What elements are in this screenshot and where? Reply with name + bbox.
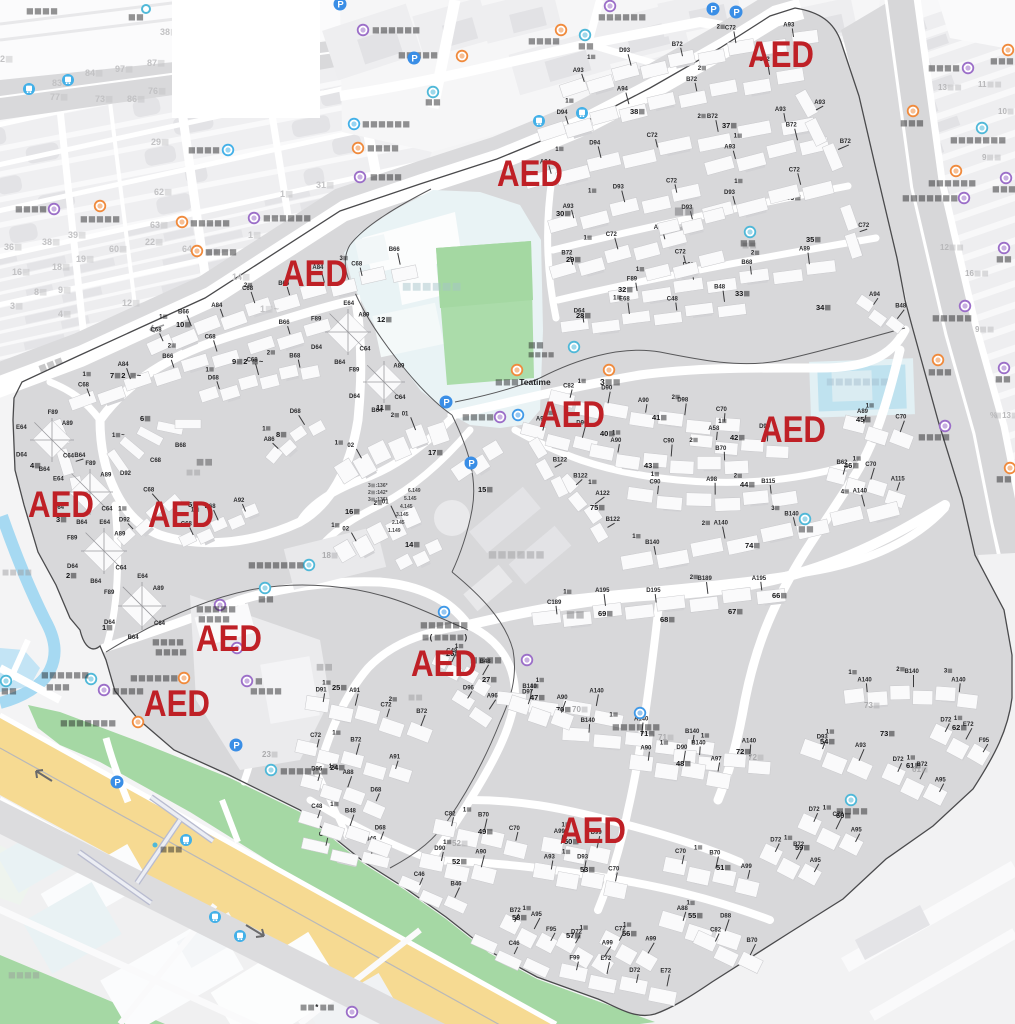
svg-text:C72: C72 — [606, 232, 618, 238]
svg-text:B66: B66 — [162, 354, 174, 360]
svg-text:61: 61 — [912, 765, 921, 774]
svg-text:74: 74 — [745, 541, 754, 550]
svg-text:A94: A94 — [869, 292, 881, 298]
svg-text:D72: D72 — [809, 807, 821, 813]
svg-text:B64: B64 — [334, 360, 346, 366]
svg-text:02: 02 — [347, 443, 354, 449]
svg-text:F99: F99 — [569, 956, 580, 962]
svg-text:15: 15 — [478, 485, 486, 494]
svg-text:C72: C72 — [647, 133, 659, 139]
svg-text:7: 7 — [110, 371, 114, 380]
svg-text:4: 4 — [58, 309, 63, 319]
svg-text:AED: AED — [282, 253, 348, 294]
svg-text:C70: C70 — [608, 867, 620, 873]
svg-text::136*: :136* — [376, 483, 388, 489]
svg-text:35: 35 — [806, 235, 814, 244]
svg-text:A95: A95 — [531, 912, 543, 918]
svg-text:66: 66 — [772, 591, 780, 600]
svg-text:A88: A88 — [343, 770, 355, 776]
svg-text:D91: D91 — [316, 687, 328, 693]
svg-text:1.149: 1.149 — [388, 528, 401, 534]
svg-text:9: 9 — [232, 357, 236, 366]
svg-text:2: 2 — [66, 571, 70, 580]
svg-text:63: 63 — [150, 220, 160, 230]
svg-text:C64: C64 — [102, 506, 114, 512]
svg-text:B115: B115 — [761, 479, 776, 485]
svg-text:B122: B122 — [573, 473, 588, 479]
svg-text:A95: A95 — [810, 858, 822, 864]
svg-text:B72: B72 — [840, 139, 852, 145]
svg-text:B48: B48 — [345, 809, 357, 815]
svg-text:29: 29 — [566, 255, 574, 264]
svg-text:2: 2 — [243, 357, 247, 366]
svg-text:A84: A84 — [118, 362, 130, 368]
svg-text:B122: B122 — [606, 517, 621, 523]
svg-text:E72: E72 — [660, 968, 671, 974]
svg-text:41: 41 — [652, 413, 660, 422]
svg-text:A92: A92 — [233, 498, 245, 504]
svg-text:C70: C70 — [716, 407, 728, 413]
svg-text:A122: A122 — [595, 491, 610, 497]
svg-text:A90: A90 — [475, 849, 487, 855]
svg-text:24: 24 — [330, 763, 339, 772]
svg-text:A93: A93 — [724, 145, 736, 151]
svg-text:D92: D92 — [119, 517, 131, 523]
svg-text:87: 87 — [147, 58, 157, 68]
svg-text:C64: C64 — [63, 454, 75, 460]
svg-text:12: 12 — [940, 243, 949, 252]
svg-text:B140: B140 — [691, 741, 706, 747]
svg-text:3: 3 — [10, 301, 15, 311]
svg-text:B140: B140 — [905, 669, 920, 675]
svg-text:C70: C70 — [865, 462, 877, 468]
svg-text:AED: AED — [196, 618, 262, 659]
svg-text:AED: AED — [148, 494, 214, 535]
svg-text:E64: E64 — [16, 425, 27, 431]
svg-text:A140: A140 — [742, 739, 757, 745]
svg-text:A89: A89 — [100, 473, 112, 479]
svg-text:A89: A89 — [393, 364, 405, 370]
svg-text:AED: AED — [560, 810, 626, 851]
svg-text:D93: D93 — [613, 185, 625, 191]
svg-text:B68: B68 — [289, 354, 301, 360]
svg-text:C72: C72 — [675, 249, 687, 255]
svg-text:D92: D92 — [120, 471, 132, 477]
svg-text:A96: A96 — [487, 694, 499, 700]
svg-text:~: ~ — [274, 304, 279, 314]
svg-text:D68: D68 — [370, 787, 382, 793]
svg-text:27: 27 — [482, 675, 490, 684]
svg-text:C90: C90 — [650, 480, 662, 486]
svg-text:A95: A95 — [935, 778, 947, 784]
svg-text:14: 14 — [405, 540, 414, 549]
svg-text:60: 60 — [109, 244, 119, 254]
svg-text:A95: A95 — [851, 828, 863, 834]
svg-text:1: 1 — [102, 623, 106, 632]
svg-text:34: 34 — [816, 303, 825, 312]
svg-text:D88: D88 — [720, 913, 732, 919]
svg-text:P: P — [443, 397, 450, 408]
svg-text:B64: B64 — [90, 579, 102, 585]
svg-text:C70: C70 — [509, 826, 521, 832]
svg-text:D195: D195 — [646, 588, 661, 594]
svg-text:B72: B72 — [707, 114, 719, 120]
svg-text:C72: C72 — [725, 25, 737, 31]
svg-text::142*: :142* — [376, 490, 388, 496]
svg-text:10: 10 — [998, 107, 1007, 116]
svg-text:D72: D72 — [770, 837, 782, 843]
svg-text:16: 16 — [965, 269, 974, 278]
svg-text:84: 84 — [85, 68, 95, 78]
svg-text:A99: A99 — [741, 864, 753, 870]
svg-text:12: 12 — [377, 315, 385, 324]
svg-text:9: 9 — [982, 153, 987, 162]
svg-text:72: 72 — [748, 753, 757, 762]
svg-text:B66: B66 — [389, 247, 401, 253]
svg-text:A94: A94 — [617, 87, 629, 93]
svg-text:AED: AED — [28, 484, 94, 525]
svg-text:F89: F89 — [311, 317, 322, 323]
svg-text:A98: A98 — [706, 477, 718, 483]
svg-text:A91: A91 — [389, 755, 401, 761]
svg-text:A89: A89 — [857, 409, 869, 415]
svg-text:A86: A86 — [264, 437, 276, 443]
svg-text:73: 73 — [880, 729, 888, 738]
svg-text:49: 49 — [478, 827, 486, 836]
svg-text:C46: C46 — [509, 941, 521, 947]
svg-text:B68: B68 — [741, 260, 753, 266]
svg-text:25: 25 — [332, 683, 340, 692]
svg-text:B70: B70 — [747, 938, 759, 944]
svg-text:Teatime: Teatime — [519, 377, 551, 387]
svg-text:6.149: 6.149 — [408, 488, 421, 494]
svg-text:A90: A90 — [638, 398, 650, 404]
svg-text:P: P — [411, 53, 418, 64]
svg-text:A140: A140 — [714, 521, 729, 527]
svg-text:AED: AED — [497, 153, 563, 194]
svg-text:D93: D93 — [577, 854, 589, 860]
svg-text:P: P — [114, 777, 121, 788]
svg-text:52: 52 — [452, 857, 460, 866]
svg-text:9: 9 — [975, 325, 980, 334]
svg-text:A195: A195 — [752, 576, 767, 582]
svg-text:28: 28 — [576, 311, 584, 320]
svg-text:A89: A89 — [62, 421, 74, 427]
svg-text:B64: B64 — [128, 635, 140, 641]
svg-text:3: 3 — [368, 497, 371, 503]
svg-text:C82: C82 — [710, 928, 722, 934]
svg-text:73: 73 — [864, 701, 873, 710]
svg-text:B72: B72 — [672, 42, 684, 48]
svg-text:A89: A89 — [799, 247, 811, 253]
svg-text:58: 58 — [512, 913, 520, 922]
svg-text:B66: B66 — [178, 309, 190, 315]
svg-text:B46: B46 — [451, 882, 463, 888]
svg-text:30: 30 — [556, 209, 564, 218]
svg-text:43: 43 — [644, 461, 652, 470]
svg-text:8: 8 — [276, 430, 280, 439]
svg-text:71: 71 — [658, 733, 667, 742]
svg-text:B64: B64 — [39, 467, 51, 473]
svg-text:C72: C72 — [789, 167, 801, 173]
svg-text:A91: A91 — [349, 688, 361, 694]
svg-text:A93: A93 — [814, 100, 826, 106]
svg-text:A90: A90 — [557, 695, 569, 701]
svg-text:AED: AED — [748, 34, 814, 75]
svg-text:(: ( — [430, 633, 433, 642]
svg-text:C68: C68 — [150, 458, 162, 464]
svg-text:~: ~ — [137, 371, 142, 380]
svg-text::136*: :136* — [376, 497, 388, 503]
svg-text:38: 38 — [42, 237, 52, 247]
svg-text:1: 1 — [260, 304, 265, 314]
svg-text:A99: A99 — [602, 941, 614, 947]
svg-text:D64: D64 — [67, 564, 79, 570]
svg-text:B72: B72 — [686, 77, 698, 83]
svg-text:16: 16 — [345, 507, 353, 516]
svg-text:AED: AED — [760, 409, 826, 450]
svg-text:B68: B68 — [175, 443, 187, 449]
svg-text:A84: A84 — [211, 303, 223, 309]
svg-text:C70: C70 — [675, 849, 687, 855]
svg-text:72: 72 — [736, 747, 744, 756]
svg-text:02: 02 — [342, 527, 349, 533]
svg-text:D90: D90 — [676, 745, 688, 751]
svg-text:A89: A89 — [114, 532, 126, 538]
svg-text:17: 17 — [428, 448, 436, 457]
svg-text:3: 3 — [600, 377, 605, 387]
svg-text:A89: A89 — [153, 586, 165, 592]
svg-text:73: 73 — [95, 94, 105, 104]
svg-text:54: 54 — [820, 737, 829, 746]
svg-text:~: ~ — [259, 357, 264, 366]
svg-text:B70: B70 — [709, 851, 721, 857]
svg-text:D90: D90 — [434, 846, 446, 852]
svg-text:9: 9 — [58, 285, 63, 295]
svg-text:C68: C68 — [78, 383, 90, 389]
svg-text:E64: E64 — [53, 477, 64, 483]
svg-text:C68: C68 — [205, 334, 217, 340]
svg-text:C82: C82 — [563, 384, 575, 390]
svg-text:A90: A90 — [640, 746, 652, 752]
svg-text:B70: B70 — [478, 813, 490, 819]
svg-text:55: 55 — [688, 911, 696, 920]
svg-text:B64: B64 — [74, 453, 86, 459]
svg-text:B189: B189 — [698, 576, 713, 582]
svg-text:~: ~ — [121, 433, 125, 439]
svg-text:97: 97 — [115, 64, 125, 74]
svg-text:A140: A140 — [853, 489, 868, 495]
svg-text:B72: B72 — [416, 709, 428, 715]
svg-text:C70: C70 — [895, 415, 907, 421]
svg-text:E64: E64 — [99, 520, 110, 526]
svg-text:AED: AED — [539, 394, 605, 435]
svg-text:76: 76 — [148, 86, 158, 96]
svg-text:44: 44 — [740, 480, 749, 489]
svg-text:AED: AED — [144, 683, 210, 724]
svg-text:18: 18 — [52, 262, 62, 272]
svg-text:F89: F89 — [48, 410, 59, 416]
svg-text:A93: A93 — [783, 22, 795, 28]
svg-text:75: 75 — [590, 503, 598, 512]
svg-text:C72: C72 — [858, 223, 870, 229]
svg-text:29: 29 — [151, 137, 161, 147]
svg-text:A140: A140 — [589, 688, 604, 694]
svg-text:D64: D64 — [349, 394, 361, 400]
svg-text:C82: C82 — [445, 811, 457, 817]
svg-text:53: 53 — [580, 865, 588, 874]
svg-text:F89: F89 — [349, 368, 360, 374]
svg-text:A97: A97 — [711, 757, 723, 763]
svg-text:01: 01 — [402, 411, 409, 417]
svg-text:A93: A93 — [855, 743, 867, 749]
svg-text:B140: B140 — [784, 511, 799, 517]
svg-text:1: 1 — [248, 230, 253, 240]
svg-text:59: 59 — [795, 843, 803, 852]
svg-text:D72: D72 — [893, 757, 905, 763]
svg-text:37: 37 — [722, 121, 730, 130]
svg-text:56: 56 — [622, 929, 630, 938]
svg-text:A93: A93 — [775, 107, 787, 113]
svg-text:68: 68 — [660, 615, 668, 624]
svg-text:P: P — [710, 4, 717, 15]
svg-text:C48: C48 — [667, 297, 679, 303]
svg-text:D68: D68 — [375, 826, 387, 832]
svg-text:C46: C46 — [414, 872, 426, 878]
svg-text:C72: C72 — [310, 733, 322, 739]
svg-text:42: 42 — [730, 433, 738, 442]
svg-text:2: 2 — [121, 371, 125, 380]
svg-text:33: 33 — [735, 289, 743, 298]
svg-text:F95: F95 — [546, 927, 557, 933]
svg-text:AED: AED — [411, 643, 477, 684]
svg-text:P: P — [468, 458, 475, 469]
svg-text:38: 38 — [630, 107, 638, 116]
svg-text:A89: A89 — [358, 313, 370, 319]
svg-text:): ) — [465, 633, 468, 642]
svg-text:P: P — [337, 0, 344, 10]
svg-text:E64: E64 — [343, 301, 354, 307]
svg-text:D94: D94 — [589, 140, 601, 146]
svg-text:P: P — [233, 740, 240, 751]
svg-text:D72: D72 — [629, 968, 641, 974]
svg-text:F89: F89 — [85, 461, 96, 467]
svg-text:69: 69 — [598, 609, 606, 618]
svg-text:B70: B70 — [715, 446, 727, 452]
svg-text:C64: C64 — [360, 346, 372, 352]
svg-text:F89: F89 — [627, 277, 638, 283]
svg-text:64: 64 — [182, 244, 192, 254]
svg-text:67: 67 — [728, 607, 736, 616]
svg-text:B140: B140 — [581, 718, 596, 724]
svg-text:18: 18 — [322, 551, 331, 560]
svg-text:A93: A93 — [573, 68, 585, 74]
svg-text:D96: D96 — [463, 685, 475, 691]
svg-text:51: 51 — [716, 863, 724, 872]
svg-text:23: 23 — [262, 750, 271, 759]
svg-text:C189: C189 — [547, 600, 562, 606]
svg-text:38: 38 — [160, 27, 170, 37]
svg-text:A115: A115 — [891, 476, 906, 482]
svg-text:A58: A58 — [708, 426, 720, 432]
svg-text:D94: D94 — [557, 110, 569, 116]
svg-text:13: 13 — [1002, 411, 1011, 420]
svg-text:13: 13 — [938, 83, 947, 92]
svg-text:47: 47 — [530, 693, 538, 702]
svg-text:D64: D64 — [16, 453, 28, 459]
svg-text:11: 11 — [978, 80, 987, 89]
svg-text:C90: C90 — [663, 439, 675, 445]
svg-text:77: 77 — [50, 92, 60, 102]
svg-text:B122: B122 — [553, 458, 568, 464]
svg-text:C64: C64 — [154, 621, 166, 627]
svg-text:D68: D68 — [290, 409, 302, 415]
svg-text:C48: C48 — [311, 804, 323, 810]
svg-text:B140: B140 — [685, 729, 700, 735]
svg-text:16: 16 — [12, 267, 22, 277]
svg-text:2: 2 — [0, 54, 5, 64]
svg-text:5.145: 5.145 — [404, 496, 417, 502]
svg-text:1: 1 — [280, 189, 285, 199]
svg-text:F95: F95 — [979, 738, 990, 744]
svg-text:B140: B140 — [645, 540, 660, 546]
svg-text:A93: A93 — [544, 855, 556, 861]
svg-text:F89: F89 — [104, 590, 115, 596]
svg-text:46: 46 — [844, 461, 852, 470]
svg-text:19: 19 — [76, 254, 86, 264]
svg-text:D72: D72 — [940, 717, 952, 723]
svg-text:70: 70 — [572, 705, 581, 714]
svg-text:36: 36 — [4, 242, 14, 252]
svg-text:11: 11 — [376, 403, 384, 412]
svg-text:C68: C68 — [151, 327, 163, 333]
svg-text:B48: B48 — [714, 285, 726, 291]
svg-text:F89: F89 — [67, 536, 78, 542]
svg-text:A195: A195 — [595, 588, 610, 594]
svg-text:B66: B66 — [279, 320, 291, 326]
svg-text:86: 86 — [127, 94, 137, 104]
svg-text:P: P — [733, 7, 740, 18]
svg-text:B72: B72 — [786, 123, 798, 129]
svg-text:8: 8 — [34, 287, 39, 297]
svg-text:14: 14 — [232, 272, 242, 282]
svg-text:83: 83 — [52, 78, 62, 88]
svg-text:A140: A140 — [857, 677, 872, 683]
svg-text:22: 22 — [145, 237, 155, 247]
svg-text:2: 2 — [368, 490, 371, 496]
svg-text:C72: C72 — [381, 703, 393, 709]
svg-text:10: 10 — [176, 320, 184, 329]
svg-text:A90: A90 — [610, 438, 622, 444]
svg-text:52: 52 — [452, 839, 461, 848]
svg-text:C68: C68 — [143, 488, 155, 494]
svg-text:12: 12 — [122, 298, 132, 308]
svg-text:A99: A99 — [645, 937, 657, 943]
svg-text:C68: C68 — [351, 262, 363, 268]
svg-text:D68: D68 — [208, 375, 220, 381]
svg-text:62: 62 — [952, 723, 960, 732]
svg-text:D93: D93 — [619, 48, 631, 54]
svg-text:2.145: 2.145 — [392, 520, 405, 526]
svg-text:B48: B48 — [895, 304, 907, 310]
svg-text:31: 31 — [316, 180, 326, 190]
svg-text:3: 3 — [368, 483, 371, 489]
svg-text:C72: C72 — [666, 178, 678, 184]
svg-text:A140: A140 — [951, 677, 966, 683]
svg-text:62: 62 — [154, 187, 164, 197]
svg-text:E72: E72 — [601, 956, 612, 962]
svg-text:32: 32 — [618, 285, 626, 294]
